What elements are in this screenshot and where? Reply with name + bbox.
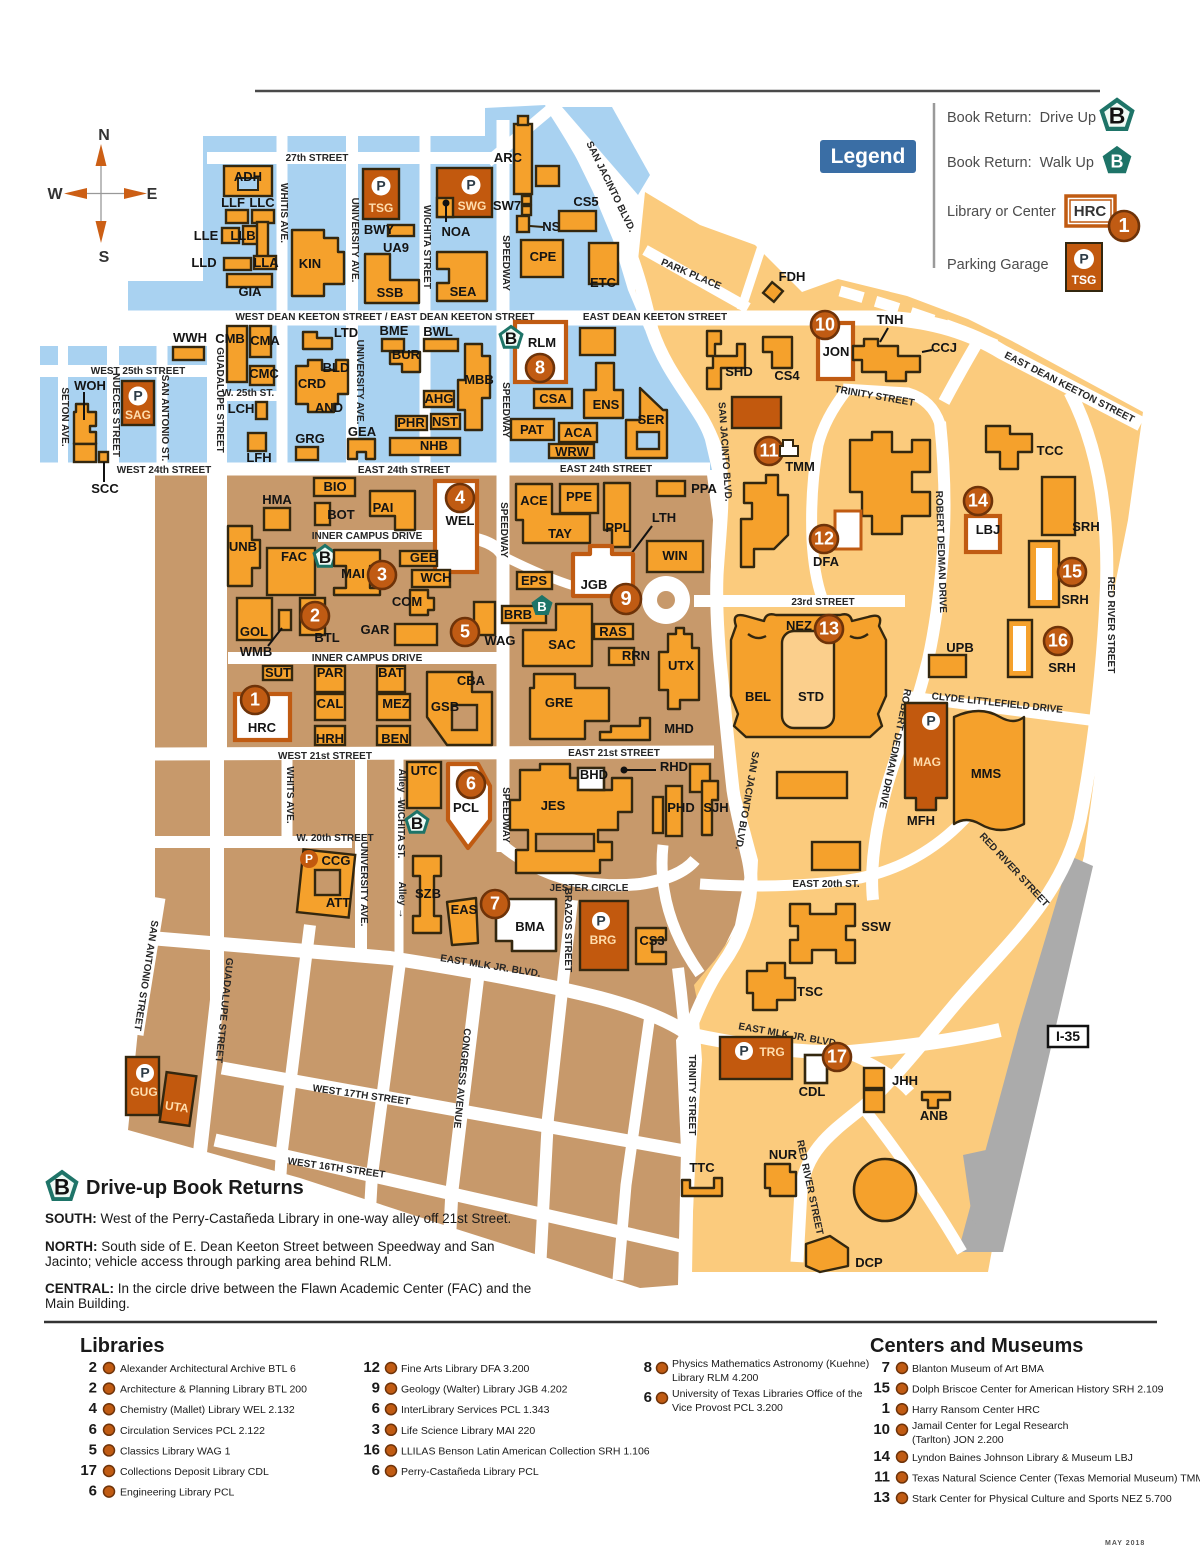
svg-text:NORTH: South side of E. Dean: NORTH: South side of E. Dean Keeton Stre… bbox=[45, 1239, 495, 1254]
svg-text:HMA: HMA bbox=[262, 492, 292, 507]
svg-text:Libraries: Libraries bbox=[80, 1335, 164, 1357]
svg-text:PAI: PAI bbox=[373, 500, 394, 515]
svg-text:SAC: SAC bbox=[548, 637, 576, 652]
svg-text:ETC: ETC bbox=[590, 275, 617, 290]
svg-text:EAST 24th STREET: EAST 24th STREET bbox=[358, 465, 450, 476]
svg-text:Blanton Museum of Art BMA: Blanton Museum of Art BMA bbox=[912, 1363, 1044, 1375]
svg-text:CDL: CDL bbox=[799, 1084, 826, 1099]
svg-text:COM: COM bbox=[392, 594, 422, 609]
svg-text:Library or Center: Library or Center bbox=[947, 204, 1056, 220]
svg-text:SSW: SSW bbox=[861, 919, 891, 934]
svg-text:WIN: WIN bbox=[662, 548, 687, 563]
svg-text:CSA: CSA bbox=[539, 391, 567, 406]
svg-text:I-35: I-35 bbox=[1056, 1028, 1080, 1044]
svg-text:Circulation Services PCL 2.122: Circulation Services PCL 2.122 bbox=[120, 1425, 265, 1437]
svg-text:LLF: LLF bbox=[221, 195, 245, 210]
svg-text:13: 13 bbox=[873, 1489, 890, 1506]
svg-text:STD: STD bbox=[798, 689, 824, 704]
svg-text:B: B bbox=[319, 548, 331, 567]
svg-text:PHR: PHR bbox=[397, 415, 425, 430]
svg-text:23rd STREET: 23rd STREET bbox=[791, 597, 854, 608]
svg-text:Fine Arts Library DFA 3.200: Fine Arts Library DFA 3.200 bbox=[401, 1363, 530, 1375]
svg-text:CS4: CS4 bbox=[774, 368, 800, 383]
svg-text:MAG: MAG bbox=[913, 755, 941, 769]
svg-text:LCH: LCH bbox=[228, 401, 255, 416]
svg-text:4: 4 bbox=[89, 1400, 98, 1417]
svg-text:DCP: DCP bbox=[855, 1255, 883, 1270]
svg-text:P: P bbox=[140, 1065, 149, 1081]
svg-text:GOL: GOL bbox=[240, 624, 268, 639]
svg-text:15: 15 bbox=[873, 1380, 890, 1397]
svg-text:Library RLM 4.200: Library RLM 4.200 bbox=[672, 1372, 759, 1384]
svg-text:8: 8 bbox=[644, 1359, 652, 1376]
svg-text:NOA: NOA bbox=[442, 224, 472, 239]
svg-text:Dolph Briscoe Center for Ameri: Dolph Briscoe Center for American Histor… bbox=[912, 1384, 1164, 1396]
svg-text:NUR: NUR bbox=[769, 1147, 798, 1162]
svg-text:EAST DEAN KEETON STREET: EAST DEAN KEETON STREET bbox=[583, 312, 727, 323]
svg-text:GRE: GRE bbox=[545, 695, 574, 710]
svg-text:BLD: BLD bbox=[323, 360, 350, 375]
svg-text:GEA: GEA bbox=[348, 424, 377, 439]
svg-text:Classics Library WAG 1: Classics Library WAG 1 bbox=[120, 1445, 231, 1457]
svg-text:UNIVERSITY AVE.: UNIVERSITY AVE. bbox=[358, 842, 369, 927]
svg-text:RAS: RAS bbox=[599, 624, 627, 639]
svg-text:UPB: UPB bbox=[946, 640, 973, 655]
svg-text:TNH: TNH bbox=[877, 312, 904, 327]
svg-text:BMA: BMA bbox=[515, 919, 545, 934]
svg-text:CAL: CAL bbox=[317, 696, 344, 711]
svg-text:7: 7 bbox=[882, 1359, 890, 1376]
svg-text:HRH: HRH bbox=[316, 731, 344, 746]
svg-text:NHB: NHB bbox=[420, 438, 448, 453]
svg-text:JON: JON bbox=[823, 344, 850, 359]
svg-text:LLC: LLC bbox=[249, 195, 275, 210]
svg-text:TCC: TCC bbox=[1037, 443, 1064, 458]
svg-text:HRC: HRC bbox=[1074, 203, 1107, 220]
svg-text:B: B bbox=[505, 329, 517, 348]
svg-text:9: 9 bbox=[372, 1380, 380, 1397]
svg-text:Engineering Library PCL: Engineering Library PCL bbox=[120, 1487, 235, 1499]
svg-text:13: 13 bbox=[819, 618, 839, 638]
svg-text:RHD: RHD bbox=[660, 759, 688, 774]
svg-text:GAR: GAR bbox=[361, 622, 391, 637]
svg-text:ANB: ANB bbox=[920, 1108, 948, 1123]
svg-text:SSB: SSB bbox=[377, 285, 404, 300]
svg-text:CCG: CCG bbox=[322, 853, 351, 868]
svg-text:GSB: GSB bbox=[431, 699, 459, 714]
svg-text:Geology (Walter) Library JGB 4: Geology (Walter) Library JGB 4.202 bbox=[401, 1384, 568, 1396]
svg-text:RED RIVER STREET: RED RIVER STREET bbox=[1105, 577, 1116, 674]
svg-text:17: 17 bbox=[80, 1462, 97, 1479]
svg-text:MHD: MHD bbox=[664, 721, 694, 736]
svg-text:CMA: CMA bbox=[250, 333, 280, 348]
svg-text:SAG: SAG bbox=[125, 408, 151, 422]
svg-text:SPEEDWAY: SPEEDWAY bbox=[500, 382, 511, 438]
svg-text:WAG: WAG bbox=[484, 633, 515, 648]
svg-text:Texas Natural Science Center (: Texas Natural Science Center (Texas Memo… bbox=[912, 1472, 1200, 1484]
svg-text:MBB: MBB bbox=[464, 372, 494, 387]
svg-text:MMS: MMS bbox=[971, 766, 1002, 781]
svg-text:UNIVERSITY AVE.: UNIVERSITY AVE. bbox=[354, 340, 365, 425]
svg-text:INNER CAMPUS DRIVE: INNER CAMPUS DRIVE bbox=[312, 531, 423, 542]
svg-text:GEB: GEB bbox=[410, 550, 438, 565]
svg-text:CCJ: CCJ bbox=[931, 340, 957, 355]
svg-text:5: 5 bbox=[460, 621, 470, 641]
svg-text:8: 8 bbox=[535, 357, 545, 377]
svg-text:6: 6 bbox=[89, 1483, 97, 1500]
svg-text:6: 6 bbox=[372, 1400, 380, 1417]
svg-text:Alley →: Alley → bbox=[396, 882, 407, 919]
svg-text:UNIVERSITY AVE.: UNIVERSITY AVE. bbox=[349, 198, 360, 283]
svg-text:SER: SER bbox=[638, 412, 665, 427]
svg-text:SZB: SZB bbox=[415, 886, 441, 901]
svg-text:27th STREET: 27th STREET bbox=[286, 153, 349, 164]
svg-text:Vice Provost PCL 3.200: Vice Provost PCL 3.200 bbox=[672, 1402, 783, 1414]
svg-text:GUADALUPE STREET: GUADALUPE STREET bbox=[214, 347, 225, 453]
svg-text:Lyndon Baines Johnson Library: Lyndon Baines Johnson Library & Museum L… bbox=[912, 1452, 1133, 1464]
svg-text:SRH: SRH bbox=[1048, 660, 1075, 675]
svg-text:B: B bbox=[1109, 103, 1126, 129]
svg-text:TAY: TAY bbox=[548, 526, 572, 541]
svg-text:TSG: TSG bbox=[1072, 273, 1097, 287]
svg-text:ARC: ARC bbox=[494, 150, 523, 165]
svg-text:W. 25th ST.: W. 25th ST. bbox=[222, 388, 274, 399]
svg-text:Alexander Architectural Archiv: Alexander Architectural Archive BTL 6 bbox=[120, 1363, 296, 1375]
svg-text:WMB: WMB bbox=[240, 644, 273, 659]
svg-text:(Tarlton) JON 2.200: (Tarlton) JON 2.200 bbox=[912, 1434, 1004, 1446]
svg-text:BRB: BRB bbox=[504, 607, 532, 622]
svg-text:SJH: SJH bbox=[703, 800, 728, 815]
svg-text:B: B bbox=[1111, 151, 1124, 171]
svg-text:BOT: BOT bbox=[327, 507, 355, 522]
svg-text:MAI: MAI bbox=[341, 566, 365, 581]
svg-text:ACA: ACA bbox=[564, 425, 593, 440]
svg-text:BWY: BWY bbox=[364, 222, 395, 237]
svg-text:16: 16 bbox=[363, 1441, 380, 1458]
svg-text:Perry-Castañeda Library PCL: Perry-Castañeda Library PCL bbox=[401, 1466, 539, 1478]
svg-text:SCC: SCC bbox=[91, 481, 119, 496]
svg-text:TRG: TRG bbox=[759, 1045, 784, 1059]
svg-text:4: 4 bbox=[455, 487, 465, 507]
svg-text:P: P bbox=[1079, 251, 1088, 267]
svg-text:BHD: BHD bbox=[580, 767, 608, 782]
svg-text:CMC: CMC bbox=[249, 366, 279, 381]
svg-text:Collections Deposit Library CD: Collections Deposit Library CDL bbox=[120, 1466, 269, 1478]
svg-text:CPE: CPE bbox=[530, 249, 557, 264]
svg-text:WEST 24th STREET: WEST 24th STREET bbox=[117, 465, 211, 476]
svg-text:BAT: BAT bbox=[378, 665, 404, 680]
svg-text:WEL: WEL bbox=[446, 513, 475, 528]
svg-text:KIN: KIN bbox=[299, 256, 321, 271]
svg-text:PPE: PPE bbox=[566, 489, 592, 504]
svg-text:WHITIS AVE.: WHITIS AVE. bbox=[278, 183, 289, 243]
svg-text:LLB: LLB bbox=[230, 228, 255, 243]
svg-text:11: 11 bbox=[759, 440, 778, 460]
svg-text:Jamail Center for Legal Resear: Jamail Center for Legal Research bbox=[912, 1420, 1069, 1432]
svg-text:LLILAS Benson Latin American C: LLILAS Benson Latin American Collection … bbox=[401, 1445, 650, 1457]
svg-text:CENTRAL: In the circle drive: CENTRAL: In the circle drive between the… bbox=[45, 1281, 531, 1296]
svg-text:WRW: WRW bbox=[555, 444, 589, 459]
svg-text:W: W bbox=[47, 186, 63, 203]
svg-text:BUR: BUR bbox=[392, 347, 421, 362]
svg-text:GUG: GUG bbox=[130, 1085, 157, 1099]
svg-text:Drive-up Book Returns: Drive-up Book Returns bbox=[86, 1177, 304, 1199]
svg-text:MAY 2018: MAY 2018 bbox=[1105, 1540, 1145, 1547]
svg-text:Main Building.: Main Building. bbox=[45, 1296, 130, 1311]
svg-text:P: P bbox=[376, 178, 385, 194]
svg-text:Book Return: Walk Up: Book Return: Walk Up bbox=[947, 155, 1094, 171]
svg-text:1: 1 bbox=[250, 689, 260, 709]
svg-text:Parking Garage: Parking Garage bbox=[947, 257, 1049, 273]
svg-text:WEST 21st STREET: WEST 21st STREET bbox=[278, 751, 372, 762]
svg-text:WWH: WWH bbox=[173, 330, 207, 345]
svg-text:TRINITY STREET: TRINITY STREET bbox=[686, 1055, 697, 1136]
svg-text:WEST 25th STREET: WEST 25th STREET bbox=[91, 366, 185, 377]
svg-text:5: 5 bbox=[89, 1441, 97, 1458]
svg-text:UA9: UA9 bbox=[383, 240, 409, 255]
svg-text:S: S bbox=[99, 249, 110, 266]
svg-text:Legend: Legend bbox=[831, 145, 906, 168]
svg-text:BTL: BTL bbox=[314, 630, 339, 645]
svg-text:JES: JES bbox=[541, 798, 566, 813]
svg-text:InterLibrary Services PCL 1.34: InterLibrary Services PCL 1.343 bbox=[401, 1404, 550, 1416]
svg-text:Chemistry (Mallet) Library WEL: Chemistry (Mallet) Library WEL 2.132 bbox=[120, 1404, 295, 1416]
svg-text:Architecture & Planning Librar: Architecture & Planning Library BTL 200 bbox=[120, 1384, 307, 1396]
svg-text:14: 14 bbox=[873, 1448, 890, 1465]
svg-text:Jacinto; vehicle access throug: Jacinto; vehicle access through parking … bbox=[45, 1254, 392, 1269]
svg-text:LBJ: LBJ bbox=[976, 522, 1001, 537]
svg-text:JHH: JHH bbox=[892, 1073, 918, 1088]
svg-text:SHD: SHD bbox=[725, 364, 752, 379]
svg-text:EAST 20th ST.: EAST 20th ST. bbox=[792, 879, 859, 890]
svg-text:SRH: SRH bbox=[1061, 592, 1088, 607]
svg-text:Alley →: Alley → bbox=[396, 769, 407, 806]
svg-text:15: 15 bbox=[1062, 561, 1082, 581]
svg-text:CS5: CS5 bbox=[573, 194, 598, 209]
svg-text:7: 7 bbox=[490, 893, 500, 913]
svg-text:BWL: BWL bbox=[423, 324, 453, 339]
svg-text:SPEEDWAY: SPEEDWAY bbox=[500, 235, 511, 291]
svg-text:6: 6 bbox=[372, 1462, 380, 1479]
svg-text:TTC: TTC bbox=[689, 1160, 715, 1175]
svg-text:SEA: SEA bbox=[450, 284, 477, 299]
svg-text:EAS: EAS bbox=[451, 902, 478, 917]
svg-text:SWG: SWG bbox=[458, 199, 487, 213]
svg-text:PPA: PPA bbox=[691, 481, 717, 496]
svg-text:CRD: CRD bbox=[298, 376, 326, 391]
svg-text:EPS: EPS bbox=[521, 573, 547, 588]
svg-text:WEST DEAN KEETON STREET / EAST: WEST DEAN KEETON STREET / EAST DEAN KEET… bbox=[235, 312, 534, 323]
svg-text:EAST 21st STREET: EAST 21st STREET bbox=[568, 748, 660, 759]
svg-text:NST: NST bbox=[432, 414, 458, 429]
svg-text:WHITS AVE.: WHITS AVE. bbox=[284, 766, 295, 823]
svg-text:LLE: LLE bbox=[194, 228, 219, 243]
svg-text:PPL: PPL bbox=[605, 520, 630, 535]
svg-text:RRN: RRN bbox=[622, 648, 650, 663]
svg-text:1: 1 bbox=[882, 1400, 890, 1417]
svg-text:WCH: WCH bbox=[420, 570, 451, 585]
svg-text:University of Texas Libraries: University of Texas Libraries Office of … bbox=[672, 1388, 863, 1400]
svg-text:SETON AVE.: SETON AVE. bbox=[59, 387, 70, 446]
svg-text:N: N bbox=[98, 127, 110, 144]
svg-text:3: 3 bbox=[372, 1421, 380, 1438]
svg-text:BRAZOS STREET: BRAZOS STREET bbox=[562, 888, 573, 972]
svg-text:GRG: GRG bbox=[295, 431, 325, 446]
svg-text:14: 14 bbox=[968, 490, 988, 510]
svg-text:WICHITA STREET: WICHITA STREET bbox=[421, 205, 432, 289]
svg-text:LFH: LFH bbox=[246, 450, 271, 465]
svg-text:12: 12 bbox=[363, 1359, 380, 1376]
svg-text:SPEEDWAY: SPEEDWAY bbox=[498, 502, 509, 558]
svg-text:P: P bbox=[305, 852, 313, 866]
svg-text:TMM: TMM bbox=[785, 459, 815, 474]
svg-text:B: B bbox=[54, 1174, 70, 1199]
svg-text:FAC: FAC bbox=[281, 549, 308, 564]
svg-text:SUT: SUT bbox=[265, 665, 291, 680]
svg-text:P: P bbox=[596, 913, 605, 929]
svg-text:WOH: WOH bbox=[74, 378, 106, 393]
svg-text:INNER CAMPUS DRIVE: INNER CAMPUS DRIVE bbox=[312, 653, 423, 664]
svg-text:MEZ: MEZ bbox=[382, 696, 410, 711]
svg-text:P: P bbox=[466, 177, 475, 193]
svg-text:CMB: CMB bbox=[215, 331, 245, 346]
svg-text:16: 16 bbox=[1048, 630, 1068, 650]
svg-text:3: 3 bbox=[377, 564, 387, 584]
svg-text:11: 11 bbox=[874, 1468, 890, 1485]
svg-text:BIO: BIO bbox=[323, 479, 346, 494]
svg-text:NEZ: NEZ bbox=[786, 618, 812, 633]
svg-text:Centers and Museums: Centers and Museums bbox=[870, 1335, 1083, 1357]
svg-text:PHD: PHD bbox=[667, 800, 694, 815]
svg-text:B: B bbox=[411, 814, 423, 833]
svg-text:ATT: ATT bbox=[326, 895, 350, 910]
svg-text:Physics Mathematics Astronomy: Physics Mathematics Astronomy (Kuehne) bbox=[672, 1358, 869, 1370]
svg-text:NUECES STREET: NUECES STREET bbox=[110, 373, 121, 457]
svg-text:DFA: DFA bbox=[813, 554, 840, 569]
svg-text:TSC: TSC bbox=[797, 984, 824, 999]
svg-text:2: 2 bbox=[89, 1359, 97, 1376]
svg-text:P: P bbox=[926, 713, 935, 729]
svg-text:PCL: PCL bbox=[453, 800, 479, 815]
svg-text:SRH: SRH bbox=[1072, 519, 1099, 534]
svg-text:BEN: BEN bbox=[381, 731, 408, 746]
svg-text:ADH: ADH bbox=[234, 169, 262, 184]
svg-text:HRC: HRC bbox=[248, 720, 277, 735]
svg-text:6: 6 bbox=[89, 1421, 97, 1438]
svg-text:Book Return: Drive Up: Book Return: Drive Up bbox=[947, 110, 1096, 126]
svg-text:FDH: FDH bbox=[779, 269, 806, 284]
svg-text:RLM: RLM bbox=[528, 335, 556, 350]
svg-text:SOUTH: West of the Perry-Casta: SOUTH: West of the Perry-Castañeda Libra… bbox=[45, 1211, 511, 1226]
svg-text:SAN ANTONIO ST.: SAN ANTONIO ST. bbox=[159, 375, 170, 462]
svg-text:PAR: PAR bbox=[317, 665, 344, 680]
svg-text:SW7: SW7 bbox=[493, 198, 521, 213]
svg-text:PAT: PAT bbox=[520, 422, 544, 437]
svg-text:LLA: LLA bbox=[253, 255, 279, 270]
svg-text:CBA: CBA bbox=[457, 673, 486, 688]
svg-text:BEL: BEL bbox=[745, 689, 771, 704]
svg-text:EAST 24th STREET: EAST 24th STREET bbox=[560, 464, 652, 475]
svg-text:1: 1 bbox=[1118, 215, 1129, 237]
svg-text:2: 2 bbox=[89, 1380, 97, 1397]
svg-text:6: 6 bbox=[644, 1389, 652, 1406]
svg-text:GIA: GIA bbox=[238, 284, 262, 299]
svg-text:AND: AND bbox=[315, 400, 343, 415]
svg-text:LTD: LTD bbox=[334, 325, 358, 340]
svg-text:BRG: BRG bbox=[590, 933, 617, 947]
svg-text:TSG: TSG bbox=[369, 201, 394, 215]
svg-text:10: 10 bbox=[815, 314, 835, 334]
svg-text:10: 10 bbox=[873, 1421, 890, 1438]
svg-text:P: P bbox=[133, 388, 142, 404]
svg-text:LLD: LLD bbox=[191, 255, 216, 270]
svg-text:UTC: UTC bbox=[411, 763, 438, 778]
svg-text:AHG: AHG bbox=[425, 391, 454, 406]
svg-text:9: 9 bbox=[620, 588, 631, 610]
svg-text:JGB: JGB bbox=[581, 577, 608, 592]
svg-text:CS3: CS3 bbox=[639, 933, 664, 948]
svg-text:JESTER CIRCLE: JESTER CIRCLE bbox=[550, 883, 629, 894]
svg-text:2: 2 bbox=[310, 605, 320, 625]
svg-text:ACE: ACE bbox=[520, 493, 548, 508]
svg-text:BME: BME bbox=[380, 323, 409, 338]
svg-text:UNB: UNB bbox=[229, 539, 257, 554]
svg-text:B: B bbox=[537, 599, 546, 614]
svg-text:UTX: UTX bbox=[668, 658, 694, 673]
svg-text:MFH: MFH bbox=[907, 813, 935, 828]
svg-text:Stark Center for Physical Cult: Stark Center for Physical Culture and Sp… bbox=[912, 1493, 1172, 1505]
svg-text:WICHITA ST.: WICHITA ST. bbox=[395, 800, 406, 859]
svg-text:LTH: LTH bbox=[652, 510, 676, 525]
svg-text:E: E bbox=[147, 186, 158, 203]
svg-text:Life Science Library MAI 220: Life Science Library MAI 220 bbox=[401, 1425, 535, 1437]
svg-text:P: P bbox=[739, 1043, 748, 1059]
svg-text:Harry Ransom Center HRC: Harry Ransom Center HRC bbox=[912, 1404, 1040, 1416]
svg-text:ENS: ENS bbox=[593, 397, 620, 412]
svg-text:6: 6 bbox=[466, 773, 476, 793]
svg-text:12: 12 bbox=[814, 528, 834, 548]
svg-text:17: 17 bbox=[827, 1046, 847, 1066]
